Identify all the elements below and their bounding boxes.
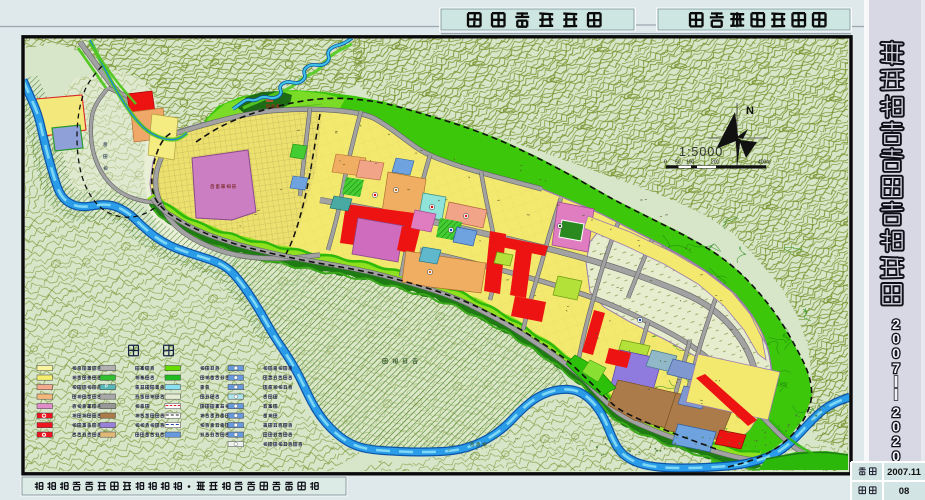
- svg-text:2007.11: 2007.11: [887, 467, 922, 478]
- svg-text:N: N: [746, 105, 754, 117]
- svg-text:P: P: [105, 384, 108, 389]
- svg-text:2: 2: [892, 316, 900, 332]
- svg-text:2: 2: [892, 433, 900, 449]
- svg-text:100: 100: [686, 160, 695, 166]
- svg-text:0: 0: [892, 345, 900, 361]
- svg-text:1:5000: 1:5000: [679, 145, 723, 159]
- svg-text:0: 0: [664, 160, 667, 166]
- svg-text:50: 50: [675, 160, 681, 166]
- svg-text:0: 0: [892, 331, 900, 347]
- svg-text:2: 2: [892, 404, 900, 420]
- svg-text:200: 200: [711, 160, 720, 166]
- svg-text:400m: 400m: [758, 160, 771, 166]
- svg-text:08: 08: [899, 486, 910, 497]
- svg-text:0: 0: [892, 419, 900, 435]
- svg-text:7: 7: [892, 360, 900, 376]
